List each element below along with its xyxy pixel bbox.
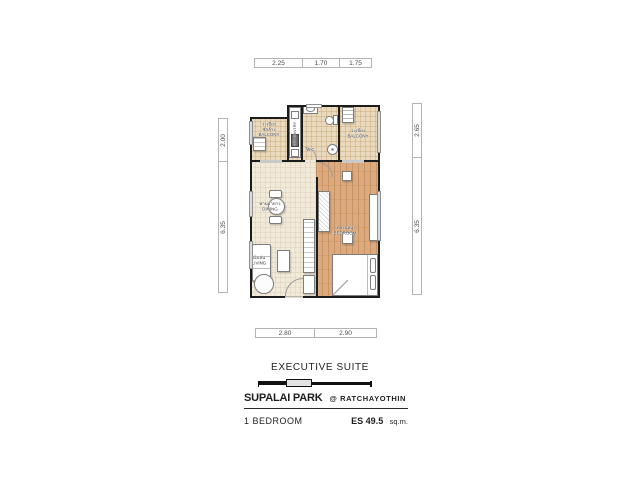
project-name: SUPALAI PARK (244, 392, 322, 404)
dimension-value: 6.35 (412, 158, 422, 295)
scale-bar-tick (258, 381, 259, 387)
room-label-en: DINING (254, 207, 287, 212)
pantry-label: ครัว PANTRY (293, 119, 298, 149)
dining-label: ทานอาหาร DINING (254, 201, 287, 212)
tv-console (303, 219, 315, 273)
bed-sheet-line (367, 255, 368, 295)
window (377, 191, 381, 241)
room-label-en: PANTRY (293, 122, 298, 138)
shower-drain (327, 144, 338, 155)
coffee-table (277, 250, 290, 272)
condenser-unit (342, 107, 354, 123)
wall-segment (250, 160, 260, 162)
dimension-bar-right: 2.65 6.35 (412, 103, 422, 295)
scale-bar-segment (258, 381, 286, 385)
unit-line: 1 BEDROOM ES 49.5 sq.m. (244, 411, 408, 429)
dimension-bar-top: 2.25 1.70 1.75 (254, 58, 372, 68)
unit-area: ES 49.5 sq.m. (351, 411, 408, 429)
wall-segment (250, 117, 289, 119)
toilet-bowl (325, 116, 334, 125)
title-rule (244, 408, 408, 409)
dimension-value: 2.65 (412, 103, 422, 158)
floorplan: ระเบียง ซักล้าง BALCONY ครัว PANTRY W.C.… (250, 105, 380, 298)
dimension-value: 1.75 (340, 58, 372, 68)
room-label-en: LIVING (243, 261, 276, 266)
unit-type: 1 BEDROOM (244, 416, 303, 426)
wall-segment (287, 105, 289, 162)
dimension-value: 2.80 (255, 328, 315, 338)
dining-chair (269, 190, 282, 198)
wall-segment (364, 160, 380, 162)
dimension-value: 2.90 (315, 328, 377, 338)
living-label: นั่งเล่น LIVING (243, 255, 276, 266)
entry-door-threshold (285, 296, 303, 297)
window (377, 111, 381, 153)
pillow (370, 258, 376, 273)
suite-name: EXECUTIVE SUITE (240, 362, 400, 373)
project-location: @ RATCHAYOTHIN (329, 394, 406, 403)
room-label-en: BEDROOM (329, 231, 362, 236)
wall-segment (338, 105, 340, 162)
room-label-thai: ครัว (293, 139, 298, 146)
scale-bar-segment (286, 379, 312, 387)
scale-bar-segment (312, 382, 370, 385)
wall-segment (303, 296, 380, 298)
dimension-value: 2.25 (254, 58, 303, 68)
dimension-value: 2.00 (218, 118, 228, 162)
wall-segment (316, 177, 318, 296)
scale-bar (258, 379, 372, 387)
dimension-value: 1.70 (303, 58, 340, 68)
dimension-bar-bottom: 2.80 2.90 (255, 328, 377, 338)
floorplan-sheet: 2.25 1.70 1.75 2.00 6.35 2.65 6.35 2.80 … (0, 0, 640, 480)
dimension-value: 6.35 (218, 162, 228, 293)
ac-unit (253, 137, 266, 151)
dimension-bar-left: 2.00 6.35 (218, 118, 228, 293)
project-line: SUPALAI PARK @ RATCHAYOTHIN (244, 392, 408, 404)
scale-bar-tick (370, 381, 372, 387)
entry-cabinet (303, 275, 315, 294)
room-label-en: W.C. (295, 147, 328, 152)
room-label-en: BALCONY (253, 132, 286, 137)
wall-segment (301, 105, 303, 162)
rug (254, 274, 274, 294)
bedroom-label: ห้องนอน BEDROOM (329, 225, 362, 236)
wc-label: W.C. (295, 147, 328, 152)
wall-segment (282, 160, 305, 162)
window (249, 191, 253, 217)
pantry-sink (291, 111, 299, 119)
stool (342, 171, 352, 181)
balcony-sliding-door (342, 160, 364, 163)
wc-window (306, 104, 322, 108)
balcony-sliding-door (260, 160, 282, 163)
balcony-left-label: ระเบียง ซักล้าง BALCONY (253, 121, 286, 137)
dining-chair (269, 216, 282, 224)
pillow (370, 275, 376, 290)
room-label-en: BALCONY (342, 134, 375, 139)
area-unit: sq.m. (390, 417, 408, 426)
balcony-right-label: ระเบียง BALCONY (342, 128, 375, 139)
blanket-fold (333, 280, 348, 295)
wall-segment (250, 296, 285, 298)
area-value: ES 49.5 (351, 416, 383, 426)
